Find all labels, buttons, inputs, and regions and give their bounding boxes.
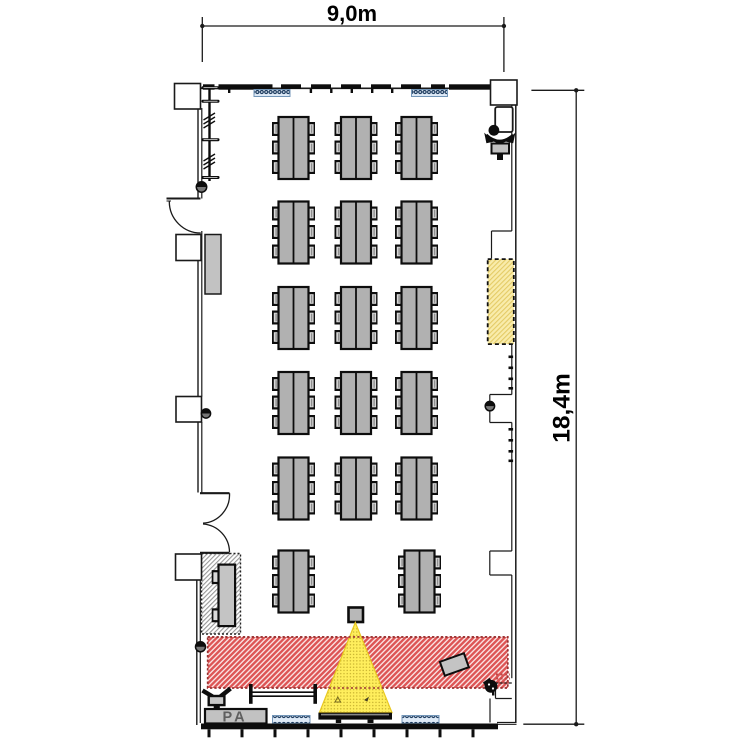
svg-text:9,0m: 9,0m [327, 1, 377, 26]
svg-text:PA: PA [223, 710, 248, 726]
svg-text:18,4m: 18,4m [549, 373, 576, 442]
